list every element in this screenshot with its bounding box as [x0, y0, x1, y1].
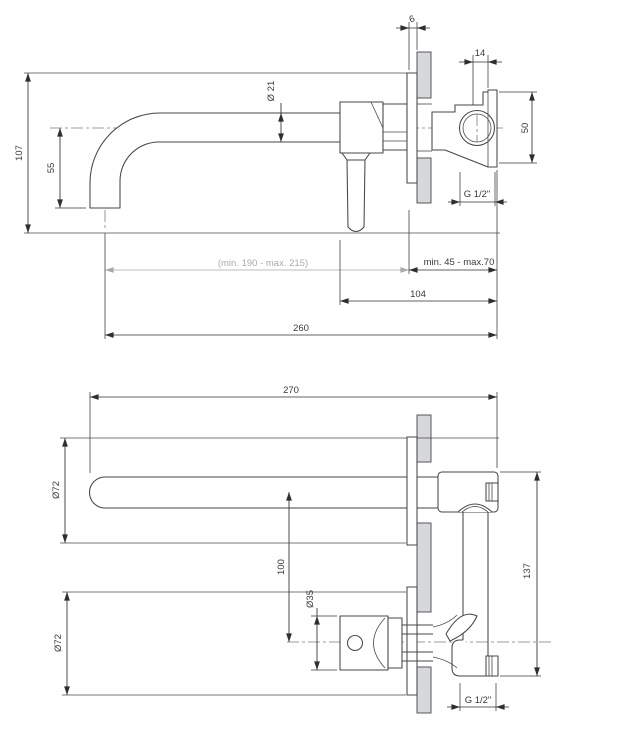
mixer-body-side — [340, 102, 383, 153]
cartridge-housing-side — [383, 104, 407, 150]
dim-thread-side: G 1/2" — [448, 172, 507, 206]
lever-handle-side — [347, 160, 365, 232]
dim-100: 100 — [276, 492, 292, 642]
dim-d21-label: Ø 21 — [266, 81, 277, 102]
lever-base-cone — [446, 614, 477, 641]
handle-escutcheon-plan — [407, 587, 417, 695]
dim-137: 137 — [500, 472, 541, 676]
dim-d72-top-label: Ø72 — [51, 481, 62, 499]
wall-section — [417, 52, 431, 98]
dim-100-label: 100 — [276, 559, 287, 575]
dim-d72-bottom-label: Ø72 — [53, 634, 64, 652]
escutcheon-plate-side — [407, 73, 417, 183]
dim-install-depth-range: min. 45 - max.70 — [409, 210, 497, 274]
dim-260-label: 260 — [293, 323, 309, 334]
dim-thread-side-label: G 1/2" — [464, 189, 491, 200]
dim-depth-range-label: min. 45 - max.70 — [424, 257, 495, 268]
spout-plan-outline — [89, 477, 438, 508]
dim-260: 260 — [105, 233, 497, 339]
dim-270-label: 270 — [283, 385, 299, 396]
dim-55-label: 55 — [46, 163, 57, 174]
dim-55: 55 — [46, 128, 86, 208]
dim-104-label: 104 — [410, 289, 426, 300]
wall-section — [417, 415, 431, 462]
plan-view: 270 Ø72 Ø72 100 — [51, 385, 553, 713]
concealed-body-plan — [433, 472, 498, 676]
dim-50: 50 — [499, 92, 537, 163]
dim-handle-rosette: Ø72 — [53, 592, 70, 695]
wall-section — [417, 667, 431, 713]
dim-thread-plan: G 1/2" — [447, 683, 509, 711]
handle-valve-foot — [452, 640, 488, 676]
dim-handle-diameter: Ø35 — [305, 590, 337, 670]
dim-spout-reach-range: (min. 190 - max. 215) — [105, 258, 409, 273]
faucet-dimension-drawing: 107 55 Ø 21 6 — [0, 0, 623, 740]
dim-d35-label: Ø35 — [305, 590, 316, 608]
dim-137-label: 137 — [522, 563, 533, 579]
side-view: 107 55 Ø 21 6 — [14, 13, 537, 339]
technical-drawing-page: 107 55 Ø 21 6 — [0, 0, 623, 740]
dim-spout-rosette: Ø72 — [51, 438, 68, 543]
dim-107: 107 — [14, 73, 31, 233]
wall-section — [417, 523, 431, 612]
knob-collar — [388, 618, 402, 668]
dim-107-label: 107 — [14, 145, 25, 161]
wall-section — [417, 158, 431, 203]
spout-escutcheon-plan — [407, 437, 417, 545]
dim-50-label: 50 — [520, 123, 531, 134]
dim-reach-range-label: (min. 190 - max. 215) — [218, 258, 308, 269]
handle-knob-plan — [340, 616, 433, 670]
lever-neck-side — [342, 153, 370, 160]
spout-side-outline — [90, 113, 340, 208]
dim-14-label: 14 — [475, 48, 486, 59]
concealed-valve-side — [432, 90, 497, 167]
dim-thread-plan-label: G 1/2" — [465, 695, 492, 706]
dim-270: 270 — [90, 385, 497, 473]
